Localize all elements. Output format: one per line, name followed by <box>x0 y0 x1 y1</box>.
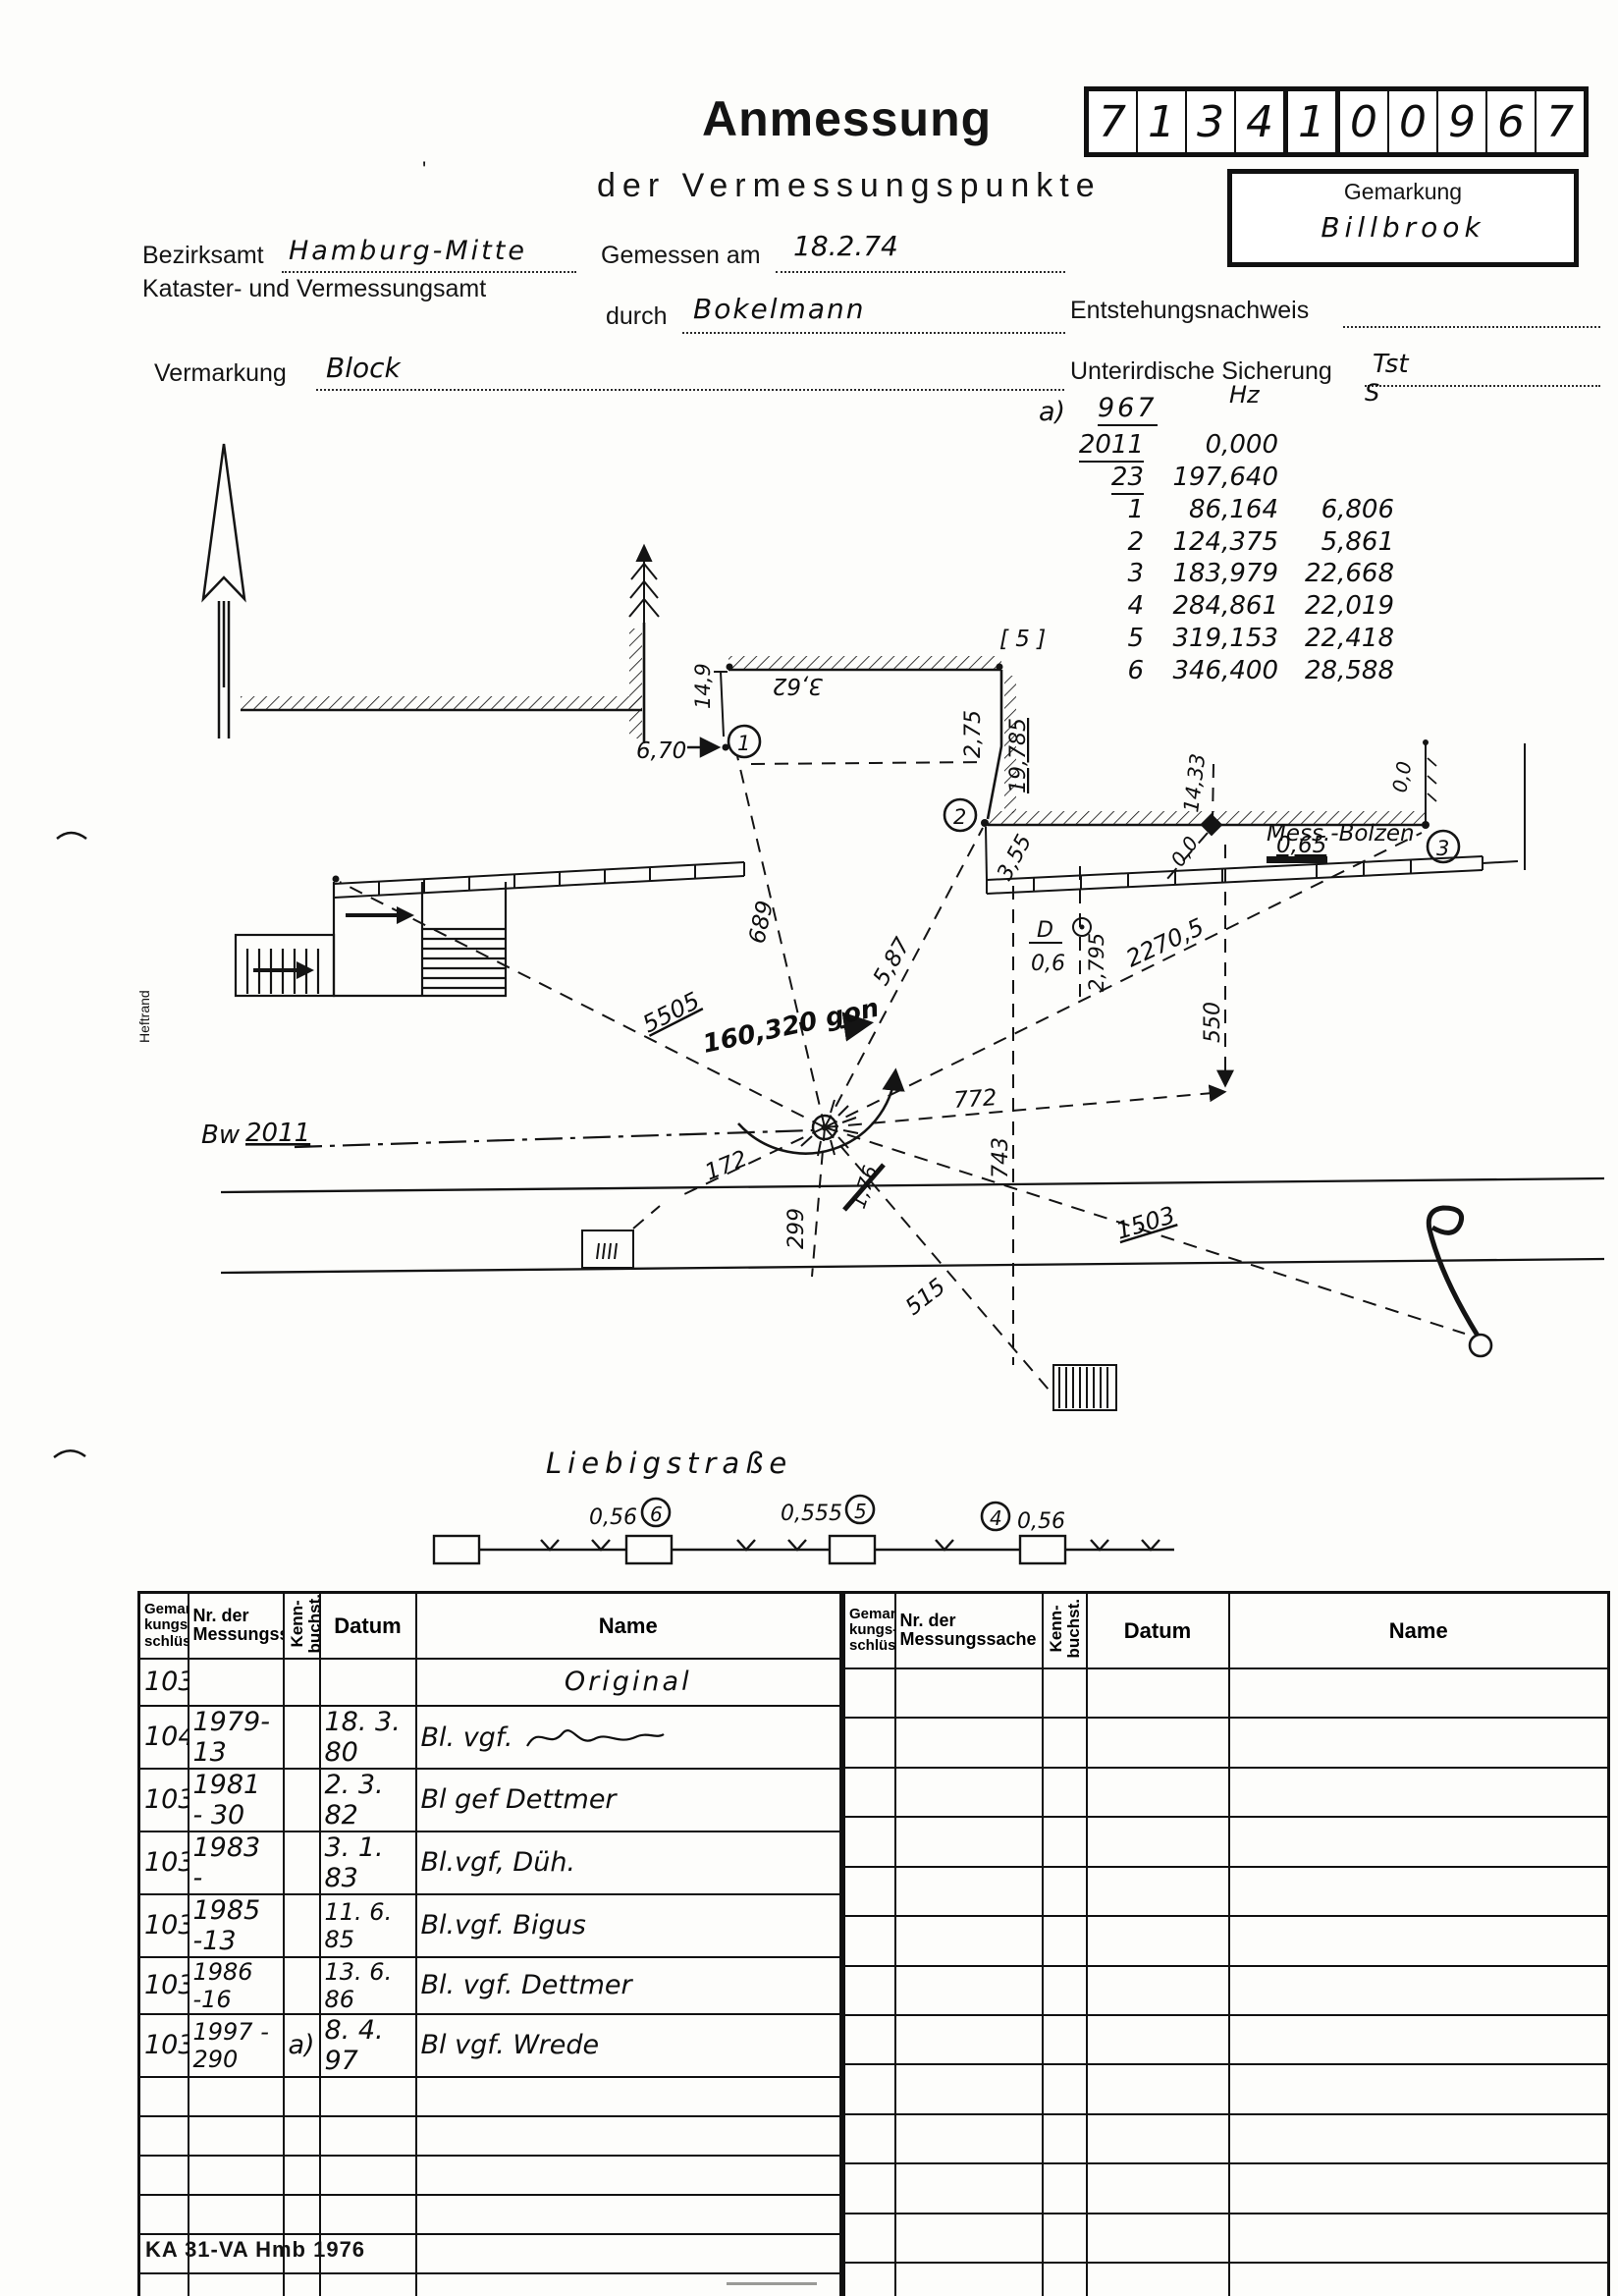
dim-172: 172 <box>702 1146 751 1186</box>
table-row-empty <box>139 2116 841 2156</box>
digit-cell: 9 <box>1436 91 1485 152</box>
table-header-row: Gemar- kungs- schlüssel Nr. der Messungs… <box>139 1593 841 1659</box>
col-kenn-label: Kenn- buchst. <box>289 1594 320 1653</box>
obs-s: 22,418 <box>1305 624 1394 653</box>
cell-datum: 2. 3. 82 <box>320 1769 416 1831</box>
table-row-empty <box>844 2214 1609 2263</box>
digit-cell: 0 <box>1335 91 1387 152</box>
table-row-empty <box>844 2015 1609 2064</box>
tree-symbol-icon <box>629 546 659 623</box>
signature-scribble <box>521 1721 669 1754</box>
offset-6: 0,56 <box>589 1505 637 1530</box>
obs-col-hz: Hz <box>1229 381 1260 409</box>
cell-kenn <box>284 1659 320 1706</box>
obs-hz: 124,375 <box>1172 527 1278 557</box>
angle-label: 160,320 gon <box>700 994 882 1060</box>
gemarkung-box: Gemarkung Billbrook <box>1227 169 1579 267</box>
obs-prefix: a) <box>1039 397 1065 427</box>
col-kenn: Kenn- buchst. <box>1043 1593 1087 1668</box>
cell-nr: 1997 - 290 <box>189 2014 284 2077</box>
obs-hz: 86,164 <box>1189 495 1278 524</box>
col-kenn-label: Kenn- buchst. <box>1048 1599 1083 1658</box>
obs-hz: 197,640 <box>1172 463 1278 492</box>
point-number-boxes: 7 1 3 4 1 0 0 9 6 7 <box>1084 86 1589 157</box>
cell-nr: 1979-13 <box>189 1706 284 1769</box>
dim-772: 772 <box>953 1085 998 1114</box>
sicherung-value: Tst <box>1373 350 1409 379</box>
obs-row: 5 319,153 22,418 <box>1021 624 1394 657</box>
point-4-label: 4 <box>990 1506 1002 1530</box>
obs-hz: 319,153 <box>1172 624 1278 653</box>
col-name: Name <box>1229 1593 1609 1668</box>
dim-362: 3,62 <box>773 673 823 698</box>
cell-gem: 103 <box>139 1659 189 1706</box>
digit-cell: 1 <box>1136 91 1185 152</box>
gemessen-value: 18.2.74 <box>793 230 898 262</box>
obs-s: 5,861 <box>1321 527 1394 557</box>
obs-row: 6 346,400 28,588 <box>1021 656 1394 689</box>
table-row: 103 1983 - 3. 1. 83 Bl.vgf, Düh. <box>139 1831 841 1894</box>
dim-22705: 2270,5 <box>1122 913 1209 973</box>
col-datum: Datum <box>320 1593 416 1659</box>
table-row-empty <box>844 1668 1609 1718</box>
table-row-empty <box>844 2163 1609 2213</box>
amt-label: Kataster- und Vermessungsamt <box>142 275 486 303</box>
cell-datum: 11. 6. 85 <box>320 1894 416 1957</box>
digit-cell: 6 <box>1485 91 1535 152</box>
obs-target: 4 <box>1127 591 1144 621</box>
drain-d: D <box>1037 918 1053 943</box>
cell-nr <box>189 1659 284 1706</box>
dim-743: 743 <box>989 1137 1013 1178</box>
col-gemarkung: Gemar- kungs- schlüssel <box>844 1593 895 1668</box>
table-row: 104 1979-13 18. 3. 80 Bl. vgf. <box>139 1706 841 1769</box>
cell-kenn <box>284 1957 320 2014</box>
dim-5505: 5505 <box>638 987 704 1039</box>
table-row-empty <box>844 1817 1609 1866</box>
dim-149: 14,9 <box>691 663 715 709</box>
cell-datum <box>320 1659 416 1706</box>
digit-cell: 1 <box>1283 91 1335 152</box>
page-subtitle: der Vermessungspunkte <box>597 167 1102 205</box>
gemarkung-label: Gemarkung <box>1232 179 1574 205</box>
col-gemarkung: Gemar- kungs- schlüssel <box>139 1593 189 1659</box>
cell-datum: 18. 3. 80 <box>320 1706 416 1769</box>
north-arrow-icon <box>203 444 244 738</box>
cell-kenn <box>284 1831 320 1894</box>
digit-cell: 7 <box>1089 91 1136 152</box>
cell-name: Bl vgf. Wrede <box>416 2014 841 2077</box>
dim-2795: 2,795 <box>1085 933 1108 992</box>
point-2-label: 2 <box>953 805 966 829</box>
cell-name-text: Bl. vgf. <box>421 1722 513 1753</box>
cell-kenn <box>284 1769 320 1831</box>
dotted-line <box>776 271 1065 273</box>
obs-target: 2011 <box>1079 430 1144 463</box>
point-3-label: 3 <box>1436 837 1449 860</box>
sicherung-label: Unterirdische Sicherung <box>1070 357 1332 386</box>
street-measure-line <box>434 1536 1174 1563</box>
angle-arc <box>738 1072 895 1154</box>
obs-s: 6,806 <box>1321 495 1394 524</box>
page-title: Anmessung <box>702 90 992 147</box>
digit-cell: 0 <box>1387 91 1436 152</box>
obs-hz: 284,861 <box>1172 591 1278 621</box>
col-nr: Nr. der Messungssache <box>895 1593 1043 1668</box>
cell-kenn <box>284 1706 320 1769</box>
cell-kenn: a) <box>284 2014 320 2077</box>
obs-col-s: S <box>1365 379 1379 407</box>
durch-label: durch <box>606 302 668 331</box>
vermarkung-value: Block <box>326 352 401 384</box>
grate-box <box>1053 1365 1116 1410</box>
table-row: 103 1981 - 30 2. 3. 82 Bl gef Dettmer <box>139 1769 841 1831</box>
table-row: 103 Original <box>139 1659 841 1706</box>
dim-689: 689 <box>744 899 779 946</box>
dim-355: 3,55 <box>993 831 1037 885</box>
obs-s: 28,588 <box>1305 656 1394 685</box>
digit-cell: 3 <box>1185 91 1234 152</box>
cell-gem: 103 <box>139 1831 189 1894</box>
bezirksamt-value: Hamburg-Mitte <box>289 236 527 266</box>
dim-587: 5,87 <box>869 933 916 990</box>
obs-target: 2 <box>1127 527 1144 557</box>
dim-670: 6,70 <box>636 738 686 764</box>
bw-label: Bw <box>201 1121 241 1150</box>
street-name: Liebigstraße <box>546 1447 792 1480</box>
point-6-label: 6 <box>650 1503 663 1526</box>
cell-nr: 1985 -13 <box>189 1894 284 1957</box>
scanned-survey-form: Heftrand <box>0 0 1618 2296</box>
dim-275: 2,75 <box>961 710 986 758</box>
col-kenn: Kenn- buchst. <box>284 1593 320 1659</box>
table-row-empty <box>844 1867 1609 1916</box>
cell-nr: 1983 - <box>189 1831 284 1894</box>
obs-row: 2 124,375 5,861 <box>1021 527 1394 561</box>
record-table: Gemar- kungs- schlüssel Nr. der Messungs… <box>137 1591 1610 2296</box>
dim-550: 550 <box>1201 1002 1225 1043</box>
brick-wall-left <box>334 862 744 898</box>
table-row: 103 1986 -16 13. 6. 86 Bl. vgf. Dettmer <box>139 1957 841 2014</box>
cell-name: Bl.vgf, Düh. <box>416 1831 841 1894</box>
dotted-line <box>282 271 576 273</box>
obs-station: 967 <box>1098 393 1158 426</box>
digit-cell: 7 <box>1535 91 1584 152</box>
cell-name: Bl. vgf. Dettmer <box>416 1957 841 2014</box>
dotted-line <box>682 332 1065 334</box>
cell-nr: 1981 - 30 <box>189 1769 284 1831</box>
street-lines <box>221 1178 1604 1273</box>
dotted-line <box>1365 385 1600 387</box>
obs-s: 22,019 <box>1305 591 1394 621</box>
wall-corner-points <box>333 664 1430 883</box>
cell-gem: 104 <box>139 1706 189 1769</box>
table-row-empty <box>139 2195 841 2234</box>
dim-1433: 14,33 <box>1179 752 1210 814</box>
scan-speck <box>727 2282 817 2285</box>
form-id: KA 31-VA Hmb 1976 <box>145 2237 365 2263</box>
cell-name: Bl. vgf. <box>416 1706 841 1769</box>
cell-datum: 8. 4. 97 <box>320 2014 416 2077</box>
cell-datum: 3. 1. 83 <box>320 1831 416 1894</box>
cell-kenn <box>284 1894 320 1957</box>
dotted-line <box>1343 326 1600 328</box>
binding-margin-label: Heftrand <box>136 990 152 1043</box>
table-row-empty <box>139 2077 841 2116</box>
obs-target: 23 <box>1111 463 1144 495</box>
table-row-empty <box>844 2263 1609 2296</box>
street-lamp-icon <box>1429 1208 1491 1356</box>
offset-5: 0,555 <box>781 1502 842 1526</box>
obs-row: 3 183,979 22,668 <box>1021 559 1394 592</box>
table-header-row: Gemar- kungs- schlüssel Nr. der Messungs… <box>844 1593 1609 1668</box>
gemarkung-value: Billbrook <box>1232 211 1574 244</box>
offset-4: 0,56 <box>1017 1509 1065 1534</box>
cell-datum: 13. 6. 86 <box>320 1957 416 2014</box>
scan-marks <box>54 833 86 1457</box>
entstehung-label: Entstehungsnachweis <box>1070 297 1309 325</box>
cell-gem: 103 <box>139 1769 189 1831</box>
vermarkung-label: Vermarkung <box>154 359 287 388</box>
durch-value: Bokelmann <box>693 293 866 325</box>
bw-number: 2011 <box>245 1119 310 1148</box>
obs-target: 1 <box>1127 495 1144 524</box>
obs-row: 2011 0,000 <box>1021 430 1394 464</box>
table-row-empty <box>844 1966 1609 2015</box>
cell-name: Bl gef Dettmer <box>416 1769 841 1831</box>
col-name: Name <box>416 1593 841 1659</box>
cell-name: Original <box>416 1659 841 1706</box>
obs-target: 3 <box>1127 559 1144 588</box>
dim-515: 515 <box>901 1274 951 1321</box>
col-nr: Nr. der Messungssache <box>189 1593 284 1659</box>
gemessen-label: Gemessen am <box>601 242 761 270</box>
stairs-building <box>236 882 506 996</box>
table-row-empty <box>844 1916 1609 1965</box>
record-table-right: Gemar- kungs- schlüssel Nr. der Messungs… <box>842 1591 1610 2296</box>
obs-hz: 346,400 <box>1172 656 1278 685</box>
dim-00a: 0,0 <box>1165 832 1203 871</box>
obs-hz: 0,000 <box>1206 430 1278 460</box>
street-gully <box>582 1230 633 1268</box>
digit-cell: 4 <box>1234 91 1283 152</box>
col-datum: Datum <box>1087 1593 1229 1668</box>
obs-hz: 183,979 <box>1172 559 1278 588</box>
table-row-empty <box>844 1768 1609 1817</box>
bw-line <box>295 1130 813 1147</box>
bezirksamt-label: Bezirksamt <box>142 242 264 270</box>
dim-065: 0,65 <box>1276 833 1326 858</box>
obs-target: 5 <box>1127 624 1144 653</box>
cell-gem: 103 <box>139 1894 189 1957</box>
obs-s: 22,668 <box>1305 559 1394 588</box>
obs-row: 23 197,640 <box>1021 463 1394 496</box>
table-row: 103 1997 - 290 a) 8. 4. 97 Bl vgf. Wrede <box>139 2014 841 2077</box>
dotted-line <box>316 389 1064 391</box>
cell-gem: 103 <box>139 1957 189 2014</box>
dim-299: 299 <box>784 1208 809 1249</box>
table-row-empty <box>844 1718 1609 1767</box>
obs-row: 1 86,164 6,806 <box>1021 495 1394 528</box>
drain-06: 0,6 <box>1031 952 1065 976</box>
cell-gem: 103 <box>139 2014 189 2077</box>
obs-row: 4 284,861 22,019 <box>1021 591 1394 625</box>
point-5-label: 5 <box>854 1500 867 1523</box>
obs-target: 6 <box>1127 656 1144 685</box>
record-table-left: Gemar- kungs- schlüssel Nr. der Messungs… <box>137 1591 842 2296</box>
dim-00b: 0,0 <box>1387 759 1416 793</box>
table-row-empty <box>844 2114 1609 2163</box>
table-row-empty <box>844 2064 1609 2113</box>
table-row-empty <box>139 2156 841 2195</box>
dim-19785: 19,785 <box>1006 718 1031 793</box>
table-row: 103 1985 -13 11. 6. 85 Bl.vgf. Bigus <box>139 1894 841 1957</box>
cell-nr: 1986 -16 <box>189 1957 284 2014</box>
point-1-label: 1 <box>737 732 750 755</box>
cell-name: Bl.vgf. Bigus <box>416 1894 841 1957</box>
stray-apostrophe: ' <box>422 157 426 183</box>
